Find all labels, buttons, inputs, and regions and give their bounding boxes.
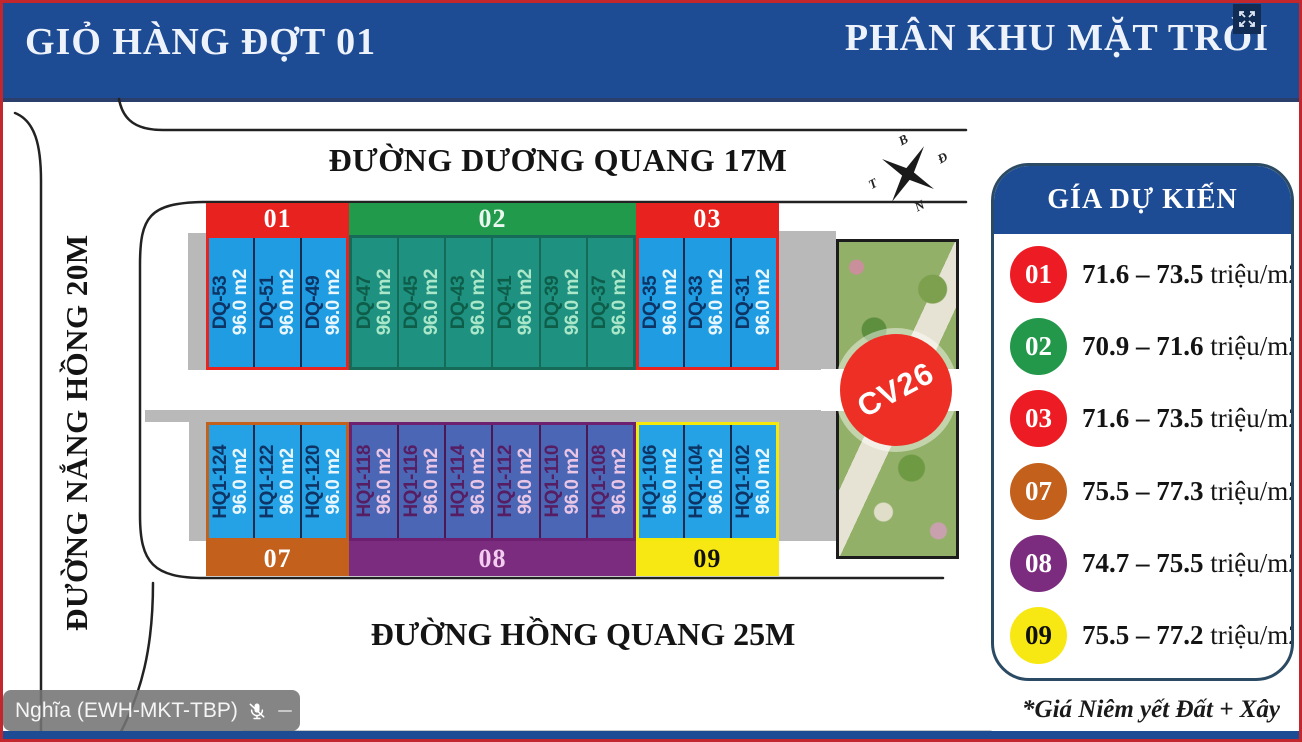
block-02-plots: DQ-4796.0 m2DQ-4596.0 m2DQ-4396.0 m2DQ-4… (349, 235, 636, 370)
legend-circle-01: 01 (1010, 246, 1067, 303)
plot-HQ1-120: HQ1-12096.0 m2 (300, 425, 346, 538)
plot-DQ-49: DQ-4996.0 m2 (300, 238, 346, 367)
plot-DQ-31: DQ-3196.0 m2 (730, 238, 776, 367)
plot-code: DQ-47 (355, 269, 375, 335)
plot-DQ-37: DQ-3796.0 m2 (586, 238, 633, 367)
block-01: 01DQ-5396.0 m2DQ-5196.0 m2DQ-4996.0 m2 (206, 203, 349, 370)
plot-code: HQ1-118 (355, 445, 375, 518)
plot-area: 96.0 m2 (707, 445, 727, 519)
plot-HQ1-102: HQ1-10296.0 m2 (730, 425, 776, 538)
legend-price-range: 75.5 – 77.2 triệu/m2 (1082, 620, 1294, 651)
plot-code: HQ1-116 (402, 445, 422, 518)
plot-code: DQ-39 (543, 269, 563, 335)
expand-icon[interactable] (1233, 4, 1261, 34)
plot-DQ-47: DQ-4796.0 m2 (352, 238, 397, 367)
street-label-hong-quang: ĐƯỜNG HỒNG QUANG 25M (283, 616, 883, 653)
plot-area: 96.0 m2 (469, 445, 489, 518)
plot-code: DQ-45 (402, 269, 422, 335)
street-label-duong-quang: ĐƯỜNG DƯƠNG QUANG 17M (233, 142, 883, 179)
compass-star (869, 136, 947, 212)
plus-button[interactable] (303, 701, 323, 721)
legend-circle-03: 03 (1010, 390, 1067, 447)
plot-area: 96.0 m2 (375, 269, 395, 335)
plot-code: DQ-53 (211, 269, 231, 335)
plot-area: 96.0 m2 (422, 269, 442, 335)
block-09-plots: HQ1-10696.0 m2HQ1-10496.0 m2HQ1-10296.0 … (636, 422, 779, 541)
plot-code: DQ-35 (641, 269, 661, 335)
plot-DQ-39: DQ-3996.0 m2 (539, 238, 586, 367)
bottom-banner (3, 731, 1299, 739)
legend-item-07: 0775.5 – 77.3 triệu/m2 (994, 463, 1291, 520)
mic-muted-icon (247, 701, 267, 721)
block-01-plots: DQ-5396.0 m2DQ-5196.0 m2DQ-4996.0 m2 (206, 235, 349, 370)
legend-price-range: 71.6 – 73.5 triệu/m2 (1082, 403, 1294, 434)
block-03-plots: DQ-3596.0 m2DQ-3396.0 m2DQ-3196.0 m2 (636, 235, 779, 370)
block-01-label: 01 (206, 203, 349, 235)
plot-area: 96.0 m2 (563, 445, 583, 518)
compass-icon: B Đ N T (869, 136, 947, 212)
plot-code: DQ-43 (449, 269, 469, 335)
plot-area: 96.0 m2 (661, 445, 681, 519)
plot-HQ1-116: HQ1-11696.0 m2 (397, 425, 444, 538)
plot-area: 96.0 m2 (516, 445, 536, 518)
sidewalk-strip (779, 231, 836, 370)
legend-circle-08: 08 (1010, 535, 1067, 592)
block-02-label: 02 (349, 203, 636, 235)
plot-HQ1-118: HQ1-11896.0 m2 (352, 425, 397, 538)
legend-item-02: 0270.9 – 71.6 triệu/m2 (994, 318, 1291, 375)
screenshot-root: GIỎ HÀNG ĐỢT 01 PHÂN KHU MẶT TRỜI ĐƯỜNG … (0, 0, 1302, 742)
plot-code: HQ1-106 (641, 445, 661, 519)
plot-DQ-51: DQ-5196.0 m2 (253, 238, 299, 367)
plot-code: DQ-49 (304, 269, 324, 335)
legend-list: 0171.6 – 73.5 triệu/m20270.9 – 71.6 triệ… (994, 238, 1291, 672)
block-09-label: 09 (636, 541, 779, 576)
plot-area: 96.0 m2 (422, 445, 442, 518)
plot-HQ1-108: HQ1-10896.0 m2 (586, 425, 633, 538)
participant-name: Nghĩa (EWH-MKT-TBP) (15, 699, 238, 723)
sidewalk-strip (145, 410, 836, 422)
block-02: 02DQ-4796.0 m2DQ-4596.0 m2DQ-4396.0 m2DQ… (349, 203, 636, 370)
plot-code: HQ1-104 (687, 445, 707, 519)
legend-item-09: 0975.5 – 77.2 triệu/m2 (994, 607, 1291, 664)
legend-circle-02: 02 (1010, 318, 1067, 375)
block-07-plots: HQ1-12496.0 m2HQ1-12296.0 m2HQ1-12096.0 … (206, 422, 349, 541)
block-07-label: 07 (206, 541, 349, 576)
legend-price-range: 74.7 – 75.5 triệu/m2 (1082, 548, 1294, 579)
plot-DQ-35: DQ-3596.0 m2 (639, 238, 683, 367)
plot-HQ1-122: HQ1-12296.0 m2 (253, 425, 299, 538)
legend-price-range: 70.9 – 71.6 triệu/m2 (1082, 331, 1294, 362)
plot-area: 96.0 m2 (661, 269, 681, 335)
plot-DQ-45: DQ-4596.0 m2 (397, 238, 444, 367)
page-title: GIỎ HÀNG ĐỢT 01 (25, 20, 376, 64)
plot-area: 96.0 m2 (324, 445, 344, 519)
plot-code: HQ1-122 (258, 445, 278, 519)
plot-area: 96.0 m2 (231, 269, 251, 335)
plot-code: HQ1-124 (211, 445, 231, 519)
plot-code: HQ1-114 (449, 445, 469, 518)
plot-area: 96.0 m2 (278, 269, 298, 335)
sidewalk-strip (779, 422, 836, 541)
block-row-bottom: HQ1-12496.0 m2HQ1-12296.0 m2HQ1-12096.0 … (206, 422, 779, 576)
legend-price-range: 75.5 – 77.3 triệu/m2 (1082, 476, 1294, 507)
plot-code: DQ-41 (496, 269, 516, 335)
plot-area: 96.0 m2 (707, 269, 727, 335)
plot-HQ1-104: HQ1-10496.0 m2 (683, 425, 729, 538)
top-banner: GIỎ HÀNG ĐỢT 01 PHÂN KHU MẶT TRỜI (3, 3, 1299, 102)
plot-DQ-43: DQ-4396.0 m2 (444, 238, 491, 367)
street-label-nang-hong: ĐƯỜNG NẮNG HỒNG 20M (59, 193, 103, 673)
plot-area: 96.0 m2 (375, 445, 395, 518)
plot-code: HQ1-102 (734, 445, 754, 519)
plot-code: DQ-51 (258, 269, 278, 335)
legend-panel: GÍA DỰ KIẾN 0171.6 – 73.5 triệu/m20270.9… (991, 163, 1294, 681)
plot-area: 96.0 m2 (469, 269, 489, 335)
plot-area: 96.0 m2 (563, 269, 583, 335)
block-08: HQ1-11896.0 m2HQ1-11696.0 m2HQ1-11496.0 … (349, 422, 636, 576)
section-title: PHÂN KHU MẶT TRỜI (845, 16, 1269, 60)
plot-HQ1-124: HQ1-12496.0 m2 (209, 425, 253, 538)
plot-code: HQ1-110 (543, 445, 563, 518)
plot-DQ-33: DQ-3396.0 m2 (683, 238, 729, 367)
legend-item-01: 0171.6 – 73.5 triệu/m2 (994, 246, 1291, 303)
legend-title: GÍA DỰ KIẾN (994, 166, 1291, 234)
plot-DQ-41: DQ-4196.0 m2 (491, 238, 538, 367)
plot-HQ1-114: HQ1-11496.0 m2 (444, 425, 491, 538)
legend-item-03: 0371.6 – 73.5 triệu/m2 (994, 390, 1291, 447)
legend-circle-09: 09 (1010, 607, 1067, 664)
park-marker: CV26 (840, 334, 952, 446)
plot-area: 96.0 m2 (278, 445, 298, 519)
plot-area: 96.0 m2 (231, 445, 251, 519)
expand-arrows-icon (1238, 10, 1256, 28)
plot-area: 96.0 m2 (754, 445, 774, 519)
plot-code: DQ-33 (687, 269, 707, 335)
legend-footnote: *Giá Niêm yết Đất + Xây (1005, 696, 1297, 724)
minus-button[interactable] (276, 702, 294, 720)
sidewalk-strip (188, 233, 208, 370)
legend-price-range: 71.6 – 73.5 triệu/m2 (1082, 259, 1294, 290)
sidewalk-strip (189, 422, 206, 541)
legend-circle-07: 07 (1010, 463, 1067, 520)
block-08-plots: HQ1-11896.0 m2HQ1-11696.0 m2HQ1-11496.0 … (349, 422, 636, 541)
plot-code: HQ1-108 (590, 445, 610, 519)
plot-code: DQ-31 (734, 269, 754, 335)
plot-area: 96.0 m2 (516, 269, 536, 335)
block-07: HQ1-12496.0 m2HQ1-12296.0 m2HQ1-12096.0 … (206, 422, 349, 576)
participant-overlay: Nghĩa (EWH-MKT-TBP) (3, 690, 300, 731)
plot-DQ-53: DQ-5396.0 m2 (209, 238, 253, 367)
plot-code: HQ1-120 (304, 445, 324, 519)
plot-code: DQ-37 (590, 269, 610, 335)
plot-HQ1-110: HQ1-11096.0 m2 (539, 425, 586, 538)
block-03-label: 03 (636, 203, 779, 235)
plot-area: 96.0 m2 (610, 269, 630, 335)
plot-HQ1-112: HQ1-11296.0 m2 (491, 425, 538, 538)
park-marker-label: CV26 (852, 355, 941, 425)
plot-area: 96.0 m2 (610, 445, 630, 519)
plot-area: 96.0 m2 (324, 269, 344, 335)
plot-HQ1-106: HQ1-10696.0 m2 (639, 425, 683, 538)
block-row-top: 01DQ-5396.0 m2DQ-5196.0 m2DQ-4996.0 m202… (206, 203, 779, 370)
block-08-label: 08 (349, 541, 636, 576)
block-03: 03DQ-3596.0 m2DQ-3396.0 m2DQ-3196.0 m2 (636, 203, 779, 370)
block-09: HQ1-10696.0 m2HQ1-10496.0 m2HQ1-10296.0 … (636, 422, 779, 576)
plot-code: HQ1-112 (496, 445, 516, 518)
plot-area: 96.0 m2 (754, 269, 774, 335)
legend-item-08: 0874.7 – 75.5 triệu/m2 (994, 535, 1291, 592)
